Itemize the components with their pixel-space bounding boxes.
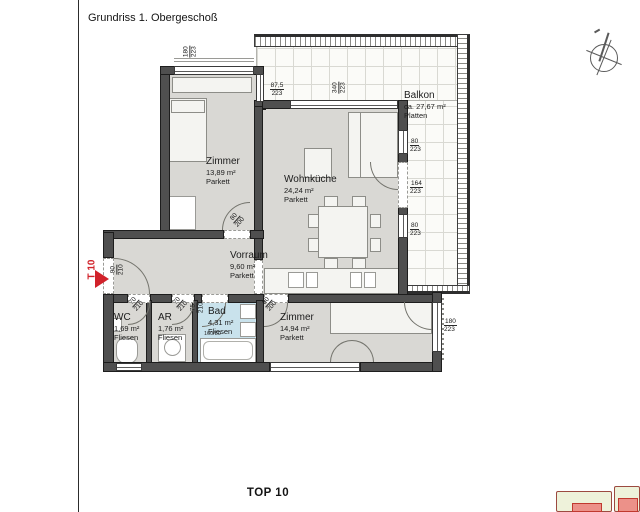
room-area: 9,60 m² <box>230 262 268 271</box>
door-opening <box>202 294 228 303</box>
room-area: 24,24 m² <box>284 186 337 195</box>
window <box>398 214 408 238</box>
window <box>174 66 254 75</box>
room-floor-type: Fliesen <box>208 327 233 336</box>
room-floor-type: Platten <box>404 111 446 120</box>
keyplan-unit-highlight <box>572 503 602 512</box>
window <box>432 302 442 352</box>
wall-niche <box>168 196 196 230</box>
dimension-label: 75210 <box>189 297 204 319</box>
room-name: Bad <box>208 306 233 318</box>
sofa-cushion-line <box>360 112 361 178</box>
wall-segment <box>432 350 442 372</box>
dimension-label: 80223 <box>410 138 432 153</box>
room-label-bad: Bad 4,31 m² Fliesen <box>208 306 233 336</box>
page-frame-line <box>78 0 79 512</box>
window <box>290 100 398 109</box>
wall-segment <box>262 100 292 109</box>
dining-table <box>318 206 368 258</box>
balcony-railing-right <box>457 34 470 290</box>
wall-segment <box>103 232 114 258</box>
dimension-label: 180223 <box>444 318 466 333</box>
compass-north-tick <box>594 29 600 33</box>
room-label-ar: AR 1,76 m² Fliesen <box>158 312 183 342</box>
dimension-label: 80223 <box>410 222 432 237</box>
wall-segment <box>150 294 172 303</box>
balcony-railing-top <box>254 34 470 47</box>
dimension-label: 180223 <box>182 40 197 64</box>
room-name: AR <box>158 312 183 324</box>
chair <box>370 238 381 252</box>
room-label-wohnkueche: Wohnküche 24,24 m² Parkett <box>284 174 337 204</box>
washbasin <box>240 304 256 319</box>
room-floor-type: Parkett <box>230 271 268 280</box>
room-floor-type: Parkett <box>280 333 314 342</box>
dimension-label: 87,5223 <box>264 82 290 97</box>
wall-segment <box>160 66 170 238</box>
floor-plan-page: Grundriss 1. Obergeschoß <box>0 0 640 512</box>
washbasin <box>240 322 256 337</box>
kitchen-sink <box>306 272 318 288</box>
room-area: 13,89 m² <box>206 168 240 177</box>
room-label-wc: WC 1,69 m² Fliesen <box>114 312 139 342</box>
wall-segment <box>360 362 440 372</box>
room-label-zimmer1: Zimmer 13,89 m² Parkett <box>206 156 240 186</box>
room-floor-type: Parkett <box>284 195 337 204</box>
wall-segment <box>103 230 224 239</box>
room-area: 4,31 m² <box>208 318 233 327</box>
room-name: WC <box>114 312 139 324</box>
page-title: Grundriss 1. Obergeschoß <box>88 12 218 24</box>
bathtub-inner <box>203 341 253 360</box>
room-label-zimmer2: Zimmer 14,94 m² Parkett <box>280 312 314 342</box>
room-name: Zimmer <box>280 312 314 324</box>
wall-segment <box>254 106 263 238</box>
wall-segment <box>103 294 114 368</box>
room-area: ca. 27,67 m² <box>404 102 446 111</box>
cooktop <box>350 272 362 288</box>
room-area: 1,76 m² <box>158 324 183 333</box>
room-label-balkon: Balkon ca. 27,67 m² Platten <box>404 90 446 120</box>
window <box>256 74 264 102</box>
balcony-door-opening <box>398 162 408 208</box>
bed-pillow <box>171 100 205 113</box>
window <box>270 362 360 372</box>
room-name: Balkon <box>404 90 446 102</box>
keyplan-unit-highlight <box>618 498 638 512</box>
window <box>398 130 408 154</box>
kitchen-counter <box>264 268 399 294</box>
dimension-label: 340223 <box>331 76 346 100</box>
room-floor-type: Fliesen <box>114 333 139 342</box>
north-compass-icon <box>584 28 630 78</box>
room-area: 14,94 m² <box>280 324 314 333</box>
room-name: Vorraum <box>230 250 268 262</box>
wardrobe <box>172 77 252 93</box>
dimension-label: 90210 <box>109 259 124 281</box>
cooktop <box>364 272 376 288</box>
dimension-label: 164223 <box>410 180 432 195</box>
window <box>116 363 142 371</box>
room-floor-type: Parkett <box>206 177 240 186</box>
room-area: 1,69 m² <box>114 324 139 333</box>
door-opening <box>224 230 250 239</box>
room-floor-type: Fliesen <box>158 333 183 342</box>
room-name: Wohnküche <box>284 174 337 186</box>
entrance-arrow-icon <box>95 270 109 288</box>
kitchen-sink <box>288 272 304 288</box>
room-name: Zimmer <box>206 156 240 168</box>
room-label-vorraum: Vorraum 9,60 m² Parkett <box>230 250 268 280</box>
unit-label: TOP 10 <box>218 487 318 499</box>
chair <box>370 214 381 228</box>
